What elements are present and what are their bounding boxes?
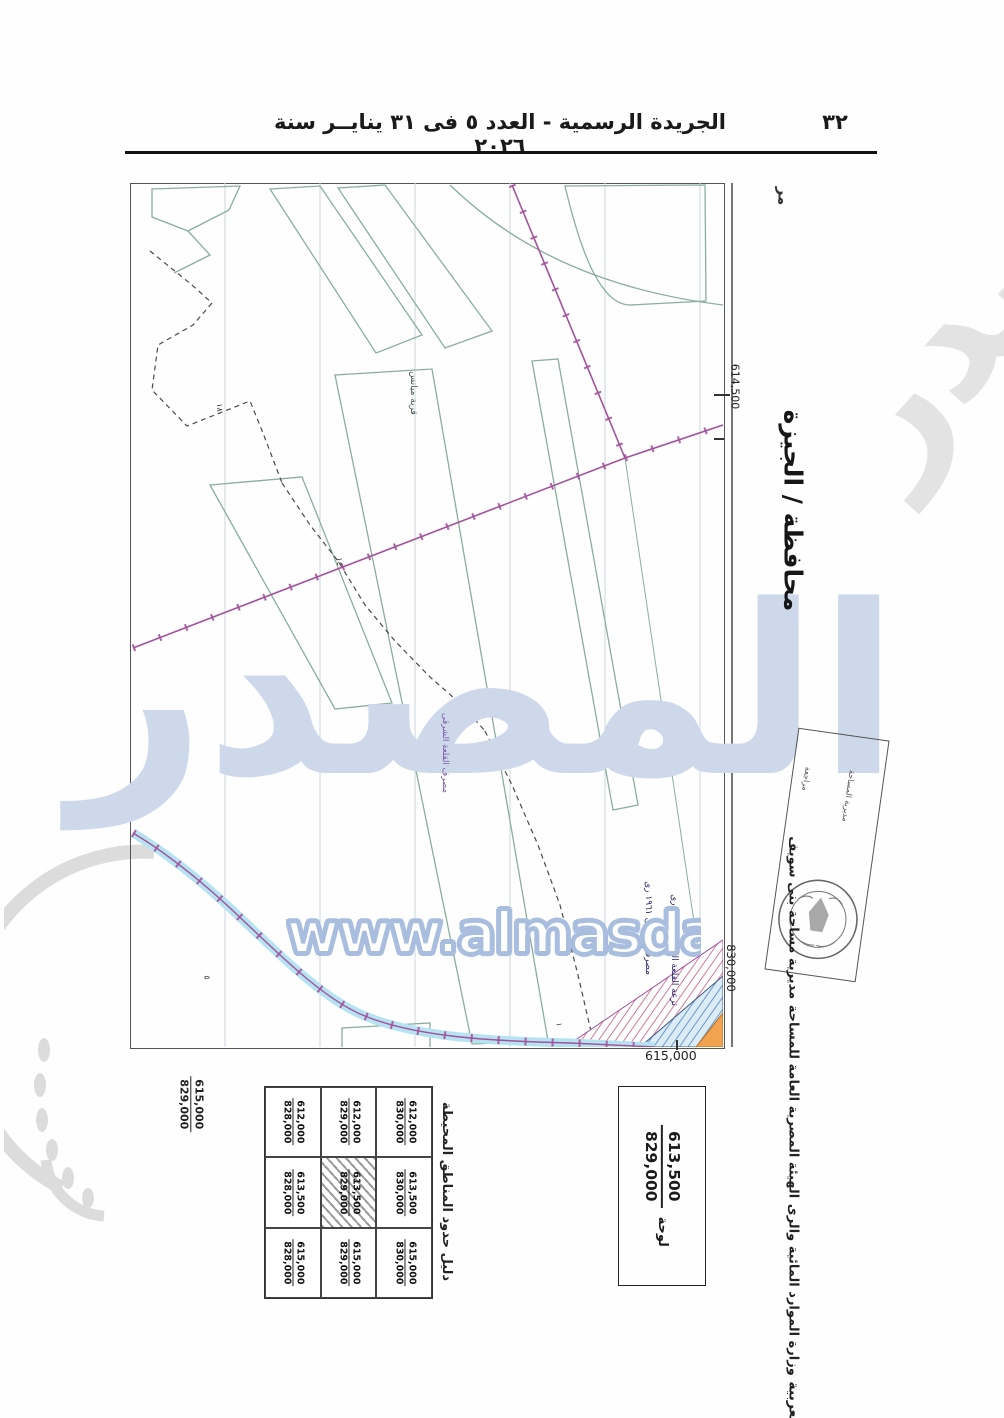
laurel-arc bbox=[46, 1160, 104, 1216]
plot-number-4: ١ bbox=[552, 1015, 566, 1033]
sheet-label: لوحة bbox=[655, 1217, 670, 1247]
corner-coordinate-label: 615,000 829,000 bbox=[168, 1062, 214, 1146]
authority-logo-line: جمهورية مصر العربية bbox=[786, 1381, 802, 1418]
grid-cell-7: 615,000828,000 bbox=[265, 1228, 321, 1298]
index-grid-title: دليل حدود المناطق المحيطة bbox=[432, 1082, 462, 1300]
grid-cell-3: 612,000830,000 bbox=[376, 1087, 432, 1157]
grid-cell-8: 615,000829,000 bbox=[321, 1228, 377, 1298]
sheet-coordinates: 613,500 829,000 bbox=[640, 1125, 684, 1208]
coordinate-830000: 830,000 bbox=[716, 930, 746, 1006]
stamp-note-1: مراجعة bbox=[791, 737, 822, 819]
grid-cell-2: 612,000829,000 bbox=[321, 1087, 377, 1157]
stamp-note-2: مديرية المساحة bbox=[831, 740, 866, 852]
grid-cell-5-current-sheet: 613,500829,000 bbox=[321, 1157, 377, 1227]
authority-directorate: مديرية مساحة بنى سويف bbox=[786, 836, 801, 999]
sheet-number-box: لوحة 613,500 829,000 bbox=[618, 1086, 706, 1286]
authority-ministry: وزارة الموارد المائية والرى bbox=[786, 1204, 801, 1376]
frame-tick-1 bbox=[714, 394, 730, 396]
plot-number-3: ٥ bbox=[200, 968, 214, 986]
coordinate-615000: 615,000 bbox=[645, 1048, 697, 1063]
authority-survey: الهيئة المصرية العامة للمساحة bbox=[786, 1005, 801, 1198]
page-number: ٣٢ bbox=[810, 110, 860, 134]
coordinate-614500: 614,500 bbox=[722, 350, 748, 422]
drain-label: مصرف القلعة الشرقى bbox=[436, 695, 454, 810]
watermark-almasdar-url: www.almasdar.com bbox=[286, 899, 701, 979]
governorate-label: محافظة / الجيزة bbox=[768, 380, 818, 640]
plot-number-1: ١٨ bbox=[212, 398, 226, 416]
frame-tick-2 bbox=[714, 438, 724, 440]
seal-eagle bbox=[806, 896, 831, 932]
grid-cell-1: 612,000828,000 bbox=[265, 1087, 321, 1157]
village-label: قرية ميانس bbox=[400, 345, 426, 440]
frame-tick-bottom bbox=[676, 1040, 678, 1050]
grid-cell-6: 613,500830,000 bbox=[376, 1157, 432, 1227]
plot-number-2: ١٤ bbox=[332, 552, 346, 570]
index-grid: 612,000828,000 612,000829,000 612,000830… bbox=[264, 1086, 433, 1299]
grid-cell-4: 613,500828,000 bbox=[265, 1157, 321, 1227]
header-rule bbox=[125, 151, 877, 154]
grid-cell-9: 615,000830,000 bbox=[376, 1228, 432, 1298]
partial-edge-text: مر bbox=[772, 178, 794, 214]
authority-block: جمهورية مصر العربية وزارة الموارد المائي… bbox=[742, 1048, 846, 1316]
gazette-page: المصدر الجريدة الرسمية - العدد ٥ فى ٣١ ي… bbox=[0, 0, 1004, 1418]
